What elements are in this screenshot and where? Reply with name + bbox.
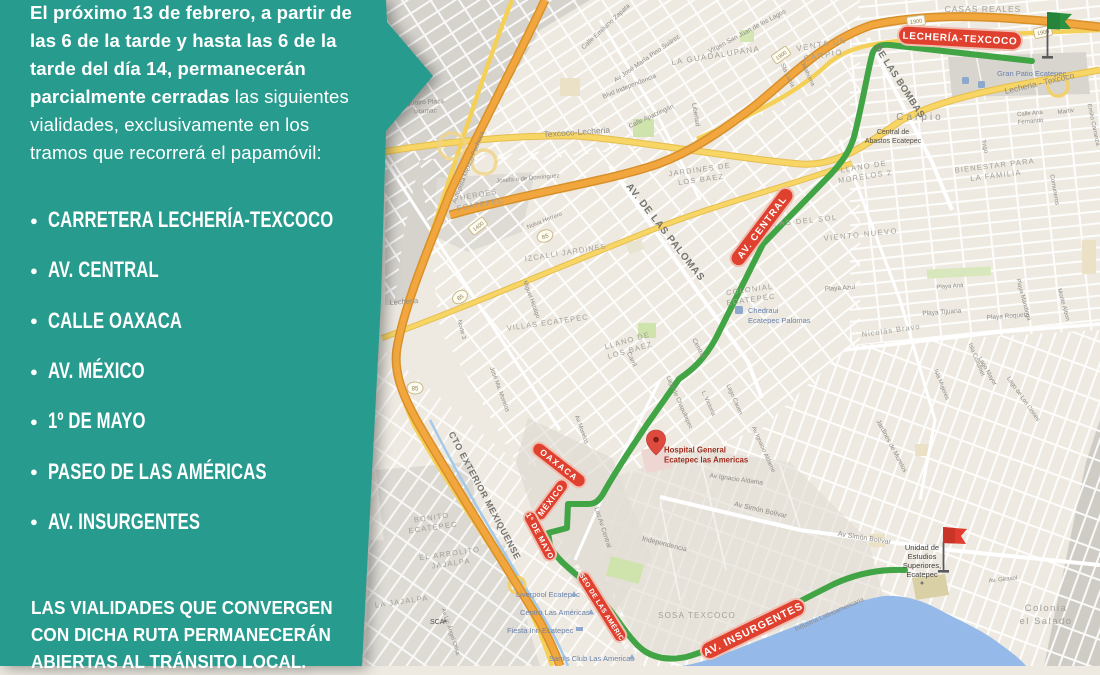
svg-text:Ecatepec Palomas: Ecatepec Palomas [748,316,811,325]
svg-text:Abastos Ecatepec: Abastos Ecatepec [865,138,922,145]
svg-text:Unidad de: Unidad de [905,543,939,552]
svg-text:Superiores,: Superiores, [903,561,941,570]
svg-text:el Salado: el Salado [1019,616,1072,627]
svg-text:Central de: Central de [877,129,909,136]
svg-text:Chedraui: Chedraui [748,306,779,315]
svg-text:Hospital General: Hospital General [664,446,726,455]
svg-text:Sam's Club Las Americas: Sam's Club Las Americas [549,654,634,663]
svg-text:Liverpool Ecatepec: Liverpool Ecatepec [516,590,580,599]
svg-text:Ecatepec las Americas: Ecatepec las Americas [664,456,749,465]
svg-text:Gran Patio Ecatepec: Gran Patio Ecatepec [997,69,1066,78]
svg-text:Centro Las Américas: Centro Las Américas [520,608,590,617]
svg-text:Estudios: Estudios [908,552,937,561]
svg-text:CASAS REALES: CASAS REALES [945,4,1022,14]
svg-text:Colonia: Colonia [1025,603,1068,614]
svg-text:SOSA TEXCOCO: SOSA TEXCOCO [658,611,736,620]
svg-text:Ecatepec: Ecatepec [906,570,938,579]
svg-text:Fiesta Inn Ecatepec: Fiesta Inn Ecatepec [507,626,574,635]
